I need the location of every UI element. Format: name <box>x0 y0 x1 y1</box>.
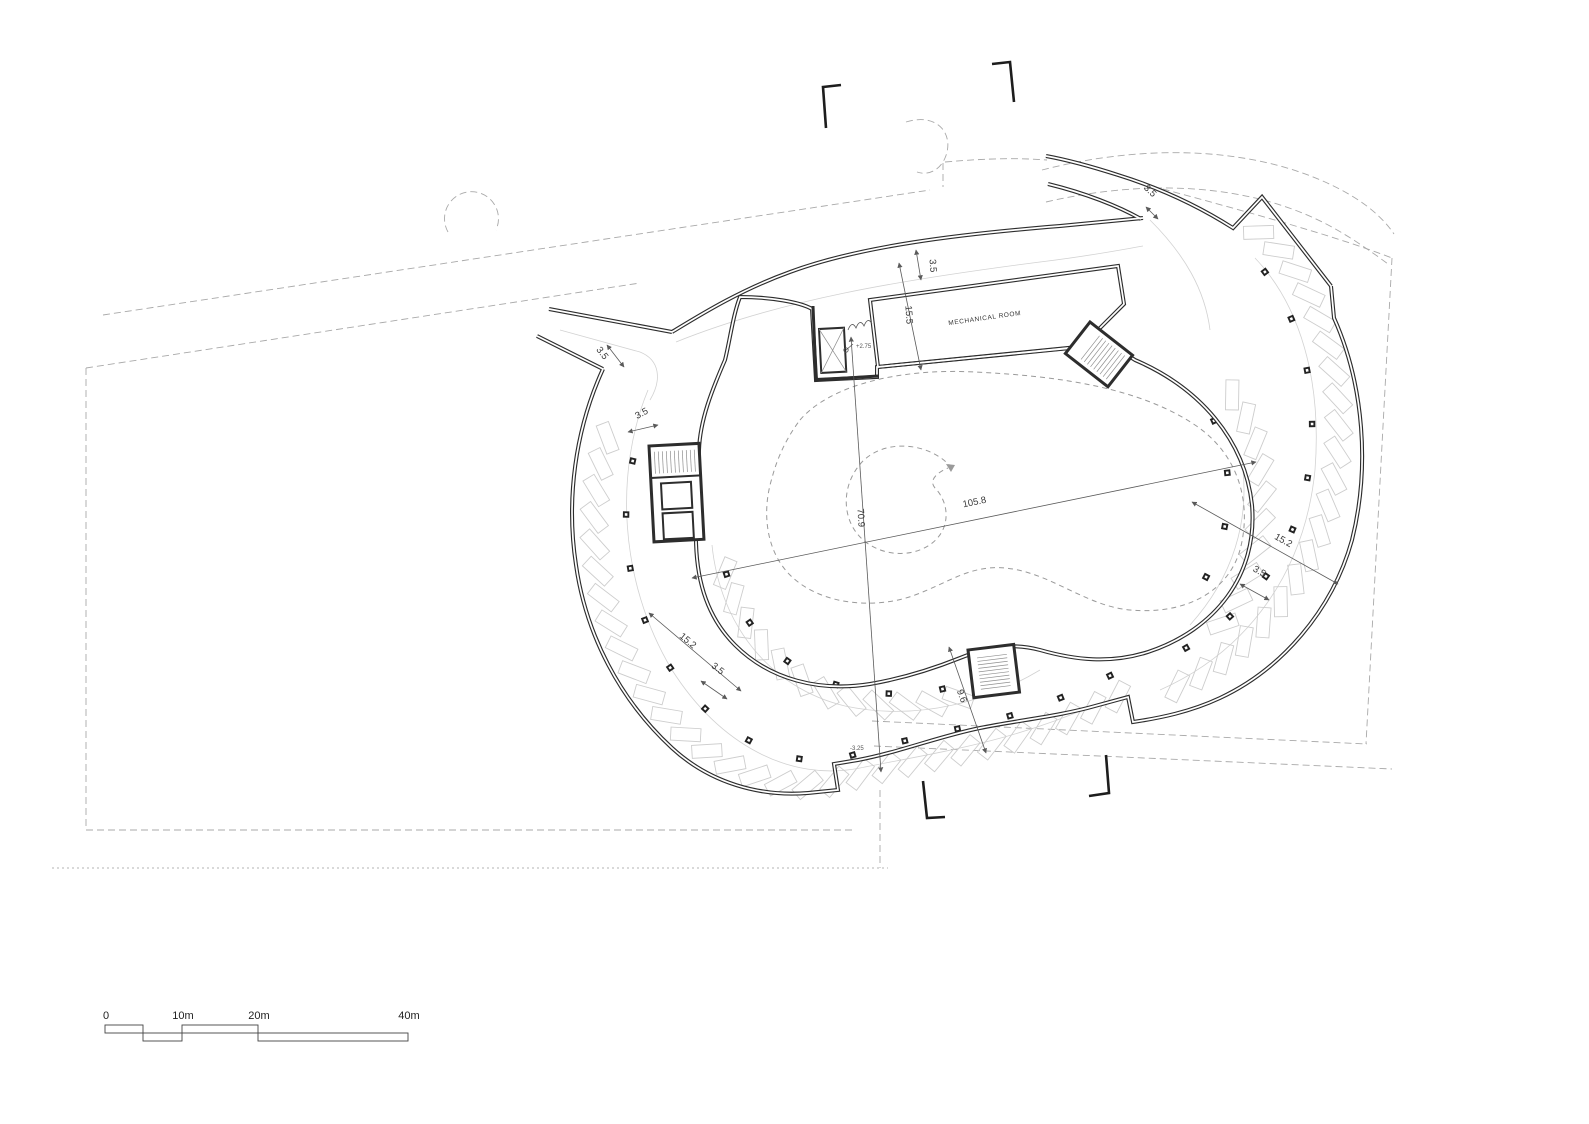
parking-stall <box>596 421 619 454</box>
level-marker-upper: +2.75 <box>856 344 872 350</box>
entry-spur-wall-inner-line <box>537 336 603 369</box>
property-boundary <box>1366 258 1392 744</box>
parking-stall <box>1292 283 1325 307</box>
parking-stall <box>1237 402 1256 434</box>
column-marker <box>885 690 892 697</box>
parking-stall <box>754 630 768 661</box>
elevator-shaft <box>819 328 846 373</box>
guide-stalls-inner-bottom <box>722 560 968 706</box>
scale-tick-10: 10m <box>172 1010 193 1022</box>
column-marker <box>1057 694 1065 702</box>
column-marker <box>1260 267 1269 276</box>
column-marker <box>1221 523 1229 531</box>
parking-stall <box>1316 489 1340 522</box>
column-marker <box>1304 474 1311 481</box>
column-marker <box>1106 671 1115 680</box>
floor-plan-page: MECHANICAL ROOM 105.8 70.9 15.5 3.5 3.5 … <box>0 0 1589 1124</box>
dim-line-left-band <box>649 613 741 691</box>
parking-stall <box>714 756 746 774</box>
stair-elevator-core-left <box>649 443 704 541</box>
parking-stall <box>583 474 610 506</box>
column-marker <box>1202 573 1211 582</box>
section-mark <box>992 62 1014 102</box>
scale-tick-0: 0 <box>103 1010 109 1022</box>
scale-tick-40: 40m <box>398 1010 419 1022</box>
parking-stall <box>1319 357 1350 387</box>
dim-line-spur-lane <box>607 345 624 367</box>
road-edge-line <box>103 190 930 315</box>
parking-stall <box>670 727 701 742</box>
scale-segment <box>182 1025 258 1033</box>
courtyard-landscape-contours <box>767 371 1245 610</box>
column-marker <box>796 755 803 762</box>
access-road-dashed <box>1152 186 1392 258</box>
dim-court-length: 105.8 <box>962 495 988 511</box>
parking-stall <box>977 728 1006 760</box>
parking-stall <box>1244 427 1267 460</box>
dim-top-lane: 3.5 <box>927 259 939 273</box>
column-marker <box>901 737 909 745</box>
opening-wavy-line <box>848 320 872 330</box>
column-marker <box>1224 469 1231 476</box>
parking-stall <box>582 556 613 586</box>
parking-stall <box>1243 225 1273 239</box>
section-mark <box>923 781 945 818</box>
parking-stall <box>1274 587 1288 617</box>
section-cut-marks <box>823 62 1109 818</box>
column-marker <box>849 751 857 759</box>
dim-line-left-lane <box>701 681 727 699</box>
dim-left-lane: 3.5 <box>709 661 726 678</box>
guide-columns-inner-right <box>1192 392 1228 600</box>
section-mark <box>823 85 841 128</box>
scale-segment <box>258 1033 408 1041</box>
parking-stall <box>595 610 627 637</box>
site-boundary-lines <box>52 120 1394 868</box>
parking-stall <box>580 501 608 533</box>
dim-line-top-lane <box>916 250 921 280</box>
property-boundary <box>872 721 1367 744</box>
dim-mech-depth: 15.5 <box>902 305 914 324</box>
parking-stall <box>1324 436 1351 468</box>
column-marker <box>1287 315 1295 323</box>
parking-stall <box>1235 626 1253 658</box>
column-marker <box>1303 367 1311 375</box>
parking-stall <box>605 636 638 661</box>
turnaround-arc <box>444 192 498 232</box>
section-mark <box>1089 755 1109 796</box>
parking-stall <box>1323 383 1353 414</box>
dim-line-court-length <box>692 462 1256 578</box>
drop-off-link <box>945 159 1047 162</box>
column-marker <box>666 663 675 672</box>
column-marker <box>629 457 637 465</box>
parking-stall <box>1213 642 1233 674</box>
scale-tick-20: 20m <box>248 1010 269 1022</box>
parking-stall <box>580 529 610 560</box>
column-marker <box>1182 644 1191 653</box>
dim-court-width: 70.9 <box>854 508 866 527</box>
entry-spur-wall-inner-line <box>549 309 672 332</box>
parking-stall <box>692 744 723 759</box>
dim-line-left-top-lane <box>628 425 658 432</box>
parking-stall <box>587 583 619 612</box>
parking-stall <box>1225 380 1239 410</box>
parking-stall <box>618 661 651 684</box>
column-marker <box>627 565 634 572</box>
column-marker <box>701 704 710 713</box>
floor-plan-drawing: MECHANICAL ROOM 105.8 70.9 15.5 3.5 3.5 … <box>0 0 1589 1124</box>
core-fill <box>649 443 704 541</box>
column-marker <box>744 736 753 745</box>
outer-wall-entry-zigzag-inner-line <box>1046 156 1331 286</box>
level-marker-lower: -3.25 <box>850 746 864 752</box>
dim-left-band: 15.2 <box>677 631 698 651</box>
parking-stall <box>925 740 954 771</box>
drop-off-loop <box>906 120 948 174</box>
parking-stall <box>889 692 921 720</box>
parking-stall <box>1288 564 1304 595</box>
parking-stall <box>1004 721 1032 753</box>
scale-segment <box>143 1033 182 1041</box>
stair-core-bottom <box>968 644 1020 697</box>
parking-stall <box>1304 306 1336 332</box>
parking-stall <box>1263 242 1295 259</box>
parking-stall <box>846 759 874 791</box>
dim-right-band: 15.2 <box>1272 532 1294 551</box>
column-marker <box>1006 712 1014 720</box>
column-marker <box>783 657 792 666</box>
column-marker <box>623 511 630 518</box>
dim-left-top-lane: 3.5 <box>633 406 650 422</box>
parking-stall <box>1324 409 1353 441</box>
scale-segment <box>105 1025 143 1033</box>
parking-stall <box>1279 261 1312 283</box>
dim-line-entry-lane <box>1146 207 1158 219</box>
road-edge-line <box>86 283 640 368</box>
guide-columns-inner-bottom <box>720 548 965 694</box>
column-marker <box>1309 421 1315 427</box>
column-marker <box>641 616 649 624</box>
parking-stall <box>837 685 866 716</box>
parking-stall <box>1300 540 1319 572</box>
outer-wall-entry-zigzag <box>1046 156 1331 286</box>
scale-bar: 0 10m 20m 40m <box>103 1010 420 1041</box>
parking-stall <box>651 707 683 725</box>
column-marker <box>1288 525 1296 533</box>
dim-line-right-lane <box>1240 584 1269 600</box>
dim-line-court-width <box>851 337 881 772</box>
column-marker <box>939 685 947 693</box>
dim-spur-lane: 3.5 <box>594 345 611 362</box>
elevator-core-top <box>813 306 878 380</box>
parking-stall <box>633 684 665 704</box>
property-boundary <box>86 368 855 830</box>
parking-stall <box>1256 607 1271 638</box>
parking-stall <box>1247 454 1274 486</box>
inner-courtyard-wall <box>696 297 1253 686</box>
